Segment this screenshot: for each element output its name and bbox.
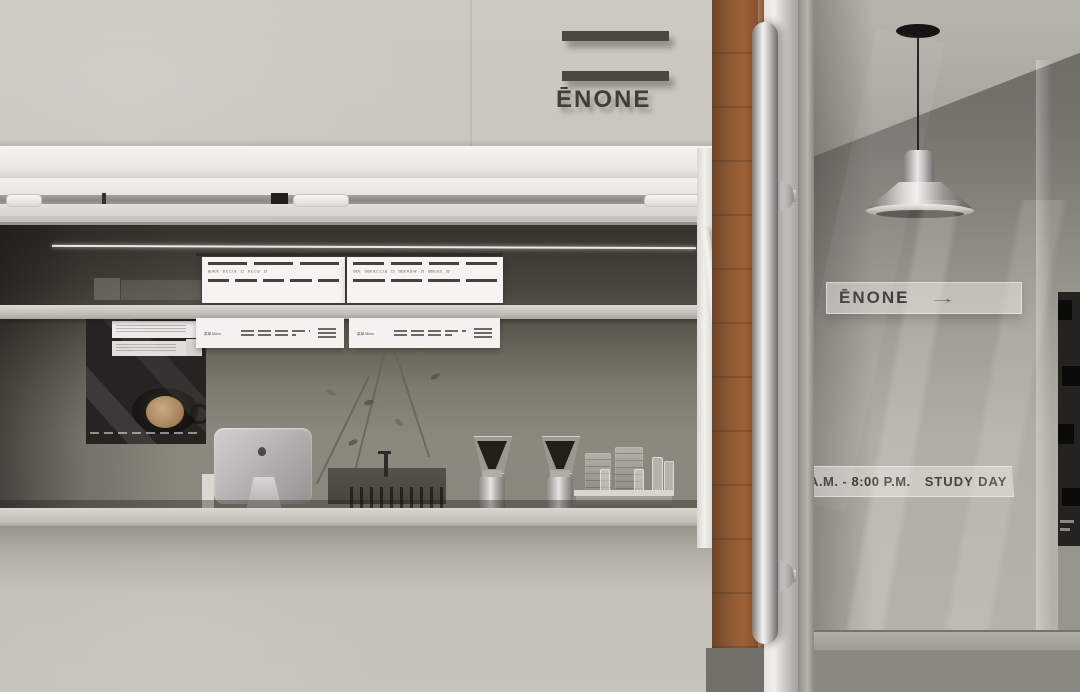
menu-text-cell: B.C C.I.B bbox=[223, 270, 237, 273]
menu-text-cell: 26 bbox=[446, 270, 450, 273]
menu-text-cell: 15 bbox=[391, 270, 395, 273]
menu-strip-en: Menu bbox=[212, 332, 221, 336]
window-top-beam bbox=[0, 146, 714, 179]
sink-faucet bbox=[384, 451, 388, 477]
plant-branch bbox=[350, 342, 388, 488]
storefront-photo: ĒNONE bbox=[0, 0, 1080, 692]
menu-strip: 菜单 Menu bbox=[196, 318, 344, 348]
poster-light-stripes bbox=[86, 316, 206, 444]
menu-text-cell: SIDE B.C C.I.B bbox=[365, 270, 387, 273]
menu-board-side: SIDE SIDE B.C C.I.B 15 SIDE R.B W 15 SID… bbox=[347, 257, 503, 303]
concrete-seam bbox=[470, 0, 472, 148]
menu-strip-marks bbox=[318, 326, 336, 340]
menu-strip: 菜单 Menu bbox=[349, 318, 500, 348]
menu-text-cell: 15 bbox=[420, 270, 424, 273]
menu-text-cell: A.C.C.B bbox=[248, 270, 260, 273]
menu-text-cell: 13 bbox=[264, 270, 268, 273]
menu-strip-marks bbox=[474, 326, 492, 340]
menu-hanger-rail bbox=[196, 253, 502, 256]
brand-logo-text: ĒNONE bbox=[556, 86, 651, 114]
glass-door-stile bbox=[798, 0, 814, 692]
hinge-stop bbox=[271, 193, 288, 204]
menu-strip-cn: 菜单 bbox=[357, 332, 364, 336]
menu-strip-lines bbox=[241, 328, 310, 338]
beam-shadow bbox=[0, 139, 714, 146]
hinge-mark bbox=[102, 193, 106, 204]
hinge-rod bbox=[0, 195, 708, 204]
menu-text-cell: SIDE bbox=[353, 270, 361, 273]
arrow-right-icon: → bbox=[929, 290, 958, 307]
hinge-sleeve bbox=[644, 194, 704, 207]
bottle bbox=[664, 461, 674, 493]
menu-text-cell: BLACK bbox=[208, 270, 219, 273]
side-menu-board bbox=[1058, 292, 1080, 546]
hinge-sleeve bbox=[293, 194, 349, 207]
poster-frame bbox=[86, 316, 206, 444]
menu-strip-cn: 菜单 bbox=[204, 332, 211, 336]
menu-strip-lines bbox=[394, 328, 466, 338]
glass-reflection bbox=[94, 278, 120, 300]
menu-text-cell: 12 bbox=[240, 270, 244, 273]
entry-floor bbox=[798, 650, 1080, 692]
window-mid-rail bbox=[0, 305, 702, 319]
menu-strip-en: Menu bbox=[365, 332, 374, 336]
glass-reflection bbox=[121, 280, 201, 300]
serving-window-opening: BLACK B.C C.I.B 12 A.C.C.B 13 SIDE SIDE … bbox=[0, 225, 702, 520]
menu-board-black: BLACK B.C C.I.B 12 A.C.C.B 13 bbox=[202, 257, 345, 303]
door-handle bbox=[752, 22, 778, 644]
menu-text-cell: SIDE R.B W bbox=[398, 270, 416, 273]
logo-bar bbox=[562, 71, 669, 81]
logo-bar bbox=[562, 31, 669, 41]
menu-text-cell: SIDE B.D bbox=[428, 270, 442, 273]
hinge-sleeve bbox=[6, 194, 42, 207]
wall-corner-highlight bbox=[1036, 60, 1056, 692]
lower-facade-wall bbox=[0, 526, 714, 692]
apple-logo-icon bbox=[258, 447, 266, 456]
counter-sill bbox=[0, 508, 714, 526]
study-day-label: STUDY DAY bbox=[925, 474, 1008, 489]
bottle bbox=[652, 457, 663, 493]
